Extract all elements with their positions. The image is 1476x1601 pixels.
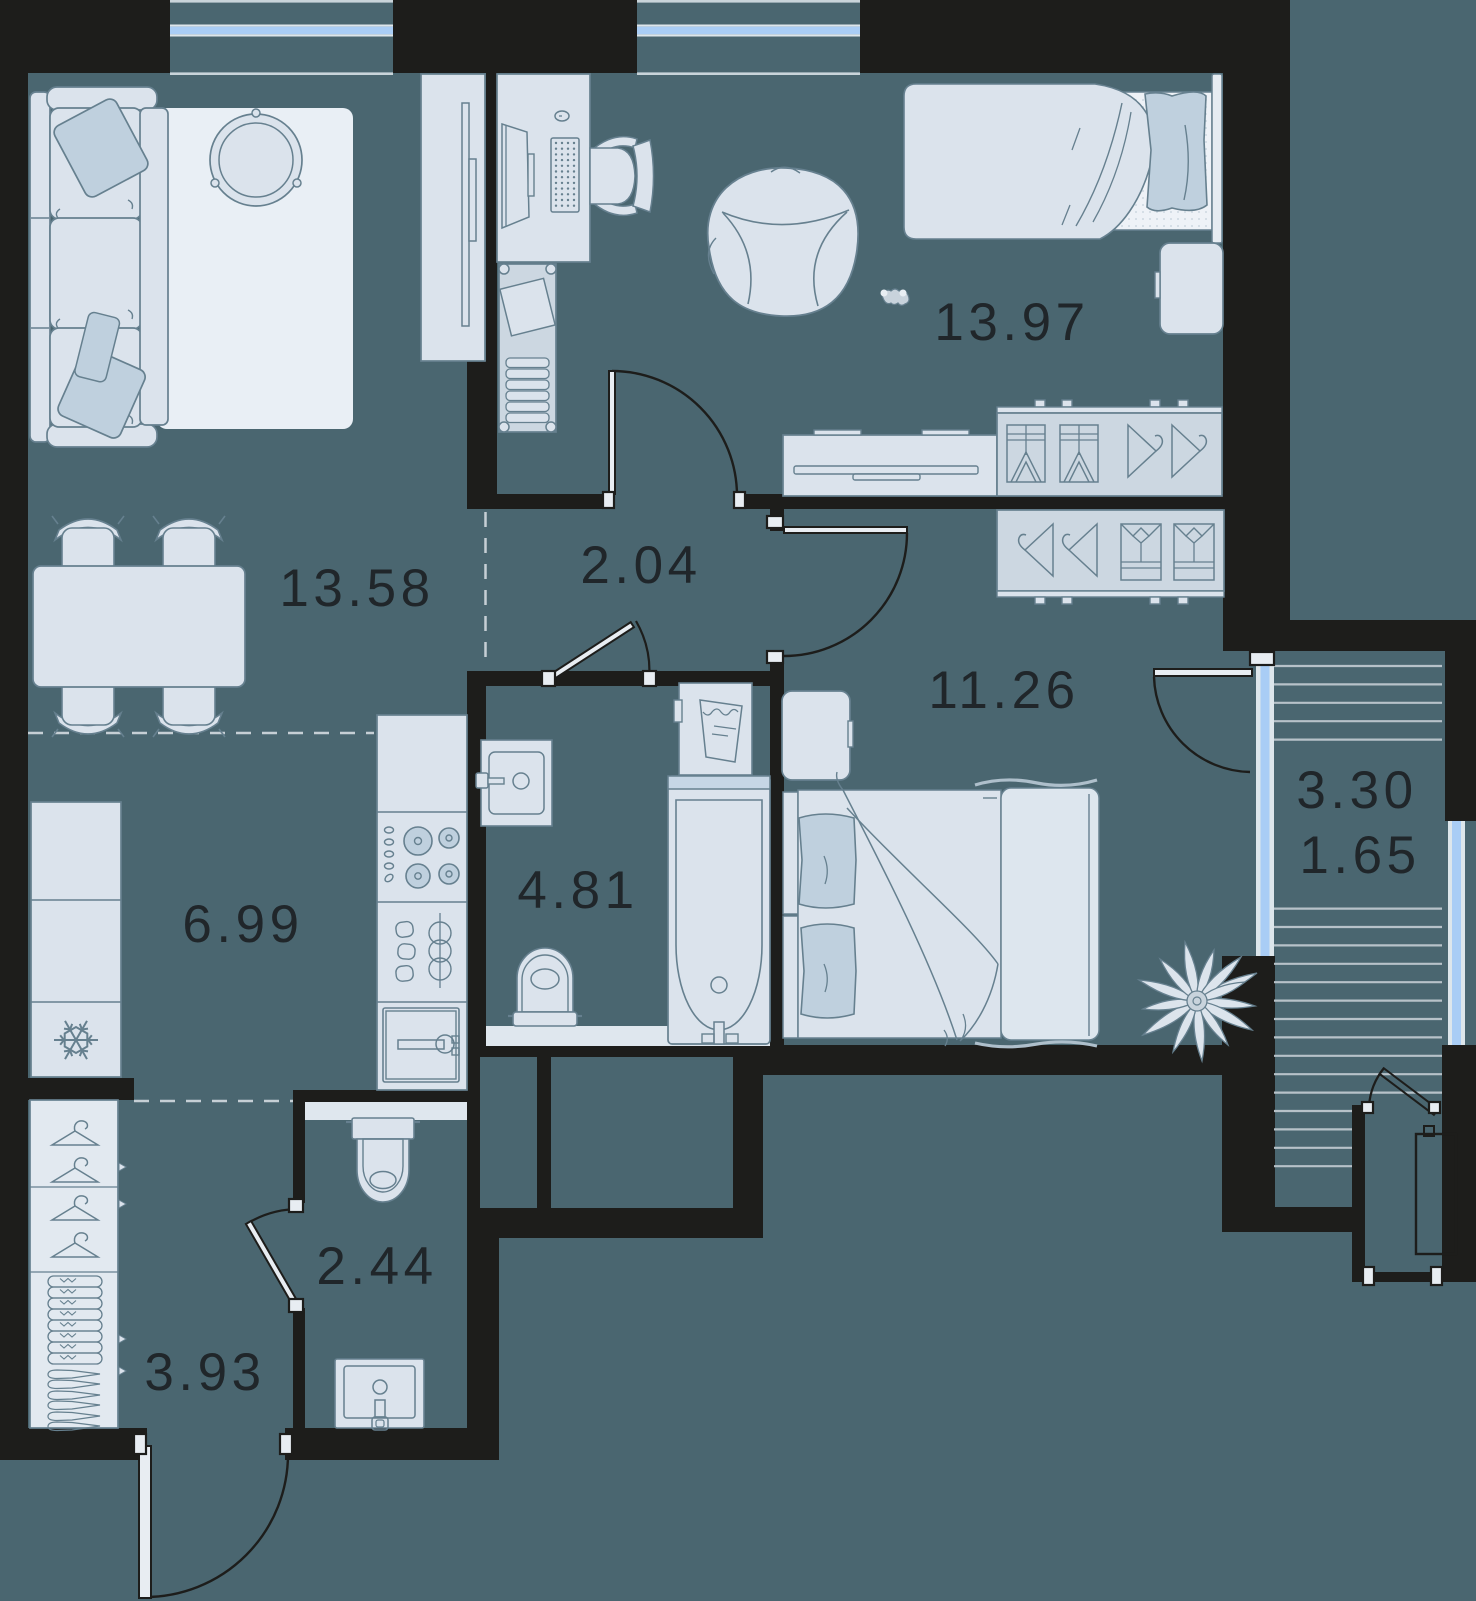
svg-text:2.44: 2.44 — [316, 1237, 437, 1296]
svg-text:3.93: 3.93 — [144, 1343, 265, 1402]
svg-text:4.81: 4.81 — [517, 861, 638, 920]
svg-text:11.26: 11.26 — [928, 661, 1079, 720]
svg-text:6.99: 6.99 — [182, 895, 303, 954]
svg-text:13.97: 13.97 — [934, 293, 1089, 352]
svg-text:2.04: 2.04 — [580, 536, 701, 595]
svg-text:13.58: 13.58 — [279, 559, 434, 618]
svg-text:1.65: 1.65 — [1299, 826, 1420, 885]
svg-text:3.30: 3.30 — [1296, 761, 1417, 820]
